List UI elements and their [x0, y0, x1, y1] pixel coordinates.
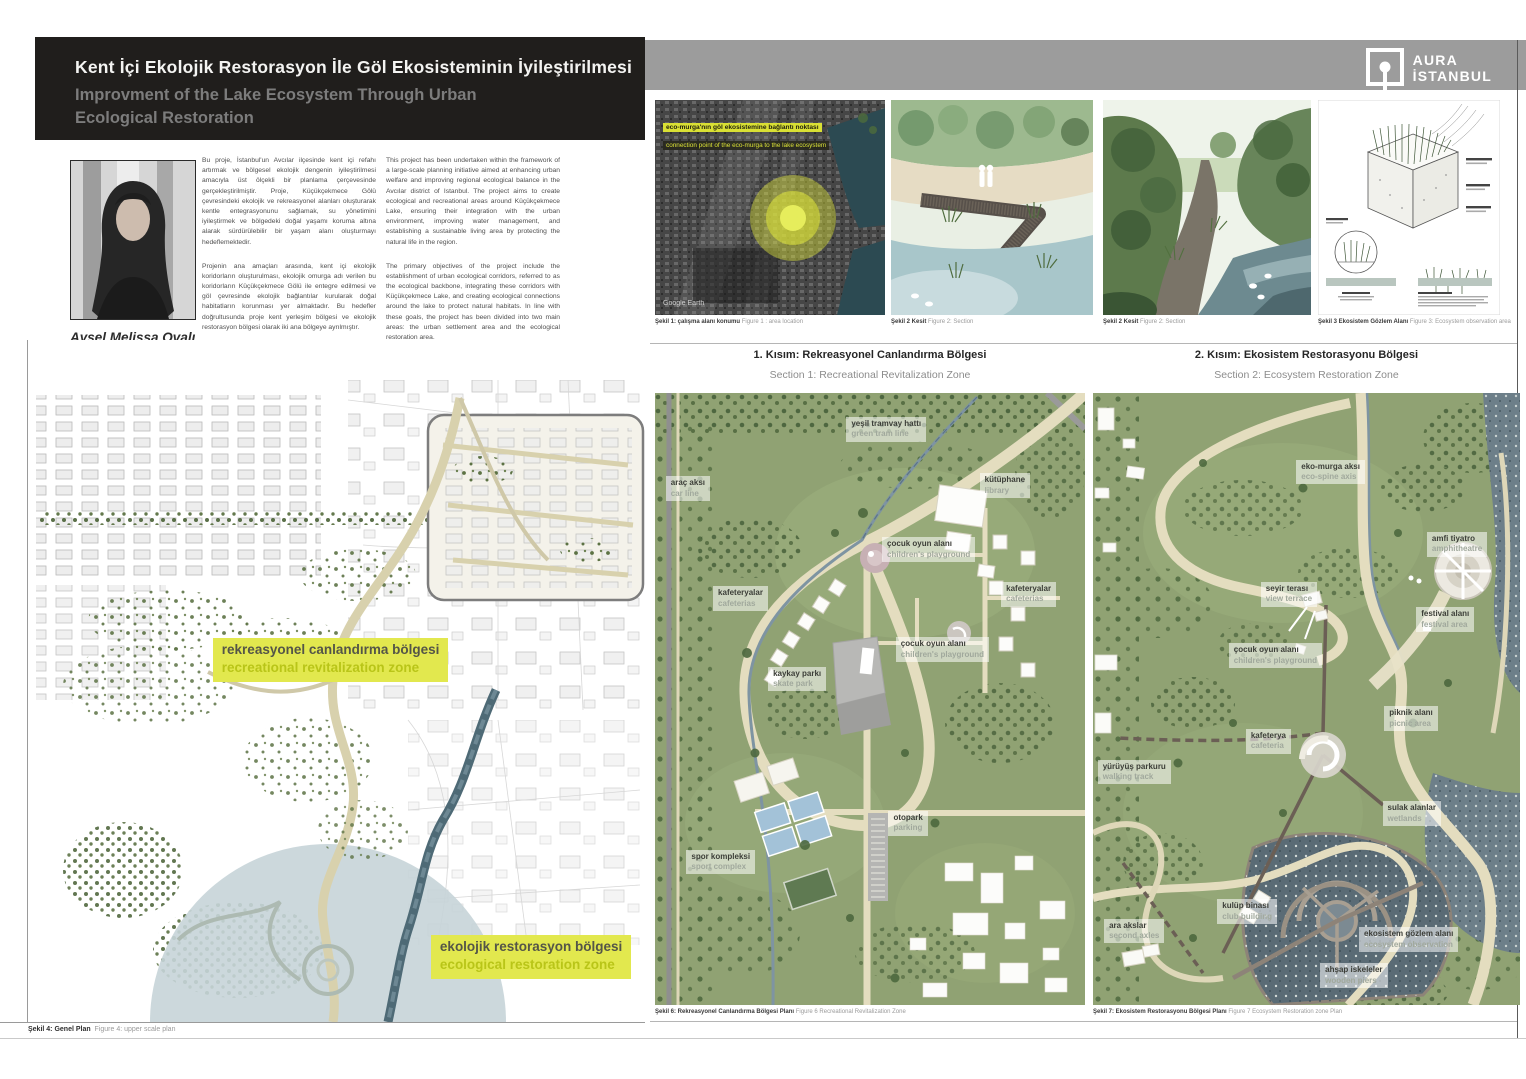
- plan2-map: eko-murga aksıeco-spine axis amfi tiyatr…: [1093, 393, 1520, 1005]
- intro-tr-paragraph-1: Bu proje, İstanbul'un Avcılar ilçesinde …: [202, 156, 376, 248]
- intro-tr-paragraph-2: Projenin ana amaçları arasında, kent içi…: [202, 262, 376, 333]
- figure-ecosystem-diagram: [1318, 100, 1500, 315]
- strip-divider-rule: [650, 343, 1517, 344]
- map-label-cafeterias-east: kafeteryalarcafeterias: [1001, 582, 1056, 607]
- section2-heading: 2. Kısım: Ekosistem Restorasyonu Bölgesi…: [1093, 349, 1520, 381]
- map-label-cafeteria: kafeteryacafeteria: [1246, 729, 1291, 754]
- intro-en-paragraph-2: The primary objectives of the project in…: [386, 262, 560, 344]
- map-label-cafeterias-west: kafeteryalarcafeterias: [713, 586, 768, 611]
- figure2-caption: Şekil 2 Kesit Figure 2: Section: [891, 319, 973, 325]
- intro-text-turkish: Bu proje, İstanbul'un Avcılar ilçesinde …: [202, 156, 376, 347]
- map-label-playground: çocuk oyun alanıchildren's playground: [1229, 643, 1322, 668]
- section2-heading-turkish: 2. Kısım: Ekosistem Restorasyonu Bölgesi: [1093, 349, 1520, 361]
- section2-heading-english: Section 2: Ecosystem Restoration Zone: [1093, 369, 1520, 381]
- google-earth-watermark: Google Earth: [663, 300, 704, 307]
- title-block: Kent İçi Ekolojik Restorasyon İle Göl Ek…: [35, 37, 645, 140]
- ecosystem-diagram-illustration: [1318, 100, 1500, 315]
- intro-en-paragraph-1: This project has been undertaken within …: [386, 156, 560, 248]
- map-label-view-terrace: seyir terasıview terrace: [1261, 582, 1317, 607]
- brand-line2: İSTANBUL: [1413, 69, 1492, 85]
- plans-bottom-rule: [650, 1021, 1517, 1022]
- map-label-skate-park: kaykay parkıskate park: [768, 667, 826, 692]
- plan1-caption: Şekil 6: Rekreasyonel Canlandırma Bölges…: [655, 1009, 906, 1015]
- map-label-playground-2: çocuk oyun alanıchildren's playground: [896, 637, 989, 662]
- author-photo: [70, 160, 196, 320]
- map-label-second-axes: ara akslarsecond axles: [1104, 919, 1164, 944]
- figure4-caption: Şekil 3 Ekosistem Gözlem Alanı Figure 3:…: [1318, 319, 1511, 325]
- map-label-playground-1: çocuk oyun alanıchildren's playground: [882, 537, 975, 562]
- zone-label-recreational: rekreasyonel canlandırma bölgesi recreat…: [213, 638, 449, 682]
- map-label-walking-track: yürüyüş parkuruwalking track: [1098, 760, 1171, 785]
- satellite-annotation-turkish: eco-murga'nın göl ekosistemine bağlantı …: [663, 123, 822, 132]
- poster-title-turkish: Kent İçi Ekolojik Restorasyon İle Göl Ek…: [75, 57, 645, 78]
- figure1-caption: Şekil 1: çalışma alanı konumu Figure 1 :…: [655, 319, 803, 325]
- figure3-caption: Şekil 2 Kesit Figure 2: Section: [1103, 319, 1185, 325]
- map-label-festival-area: festival alanıfestival area: [1416, 607, 1474, 632]
- overview-bottom-rule: [0, 1022, 645, 1023]
- section1-heading-turkish: 1. Kısım: Rekreasyonel Canlandırma Bölge…: [655, 349, 1085, 361]
- map-label-ecosystem-observation: ekosistem gözlem alanıecosystem observat…: [1359, 927, 1458, 952]
- poster-title-english: Improvment of the Lake Ecosystem Through…: [75, 84, 645, 131]
- plan1-map: yeşil tramvay hattıgreen tram line araç …: [655, 393, 1085, 1005]
- zone-label-ecological: ekolojik restorasyon bölgesi ecological …: [431, 935, 631, 979]
- satellite-annotation: eco-murga'nın göl ekosistemine bağlantı …: [663, 116, 829, 152]
- brand-wordmark: AURA İSTANBUL: [1413, 53, 1492, 84]
- map-label-picnic-area: piknik alanıpicnic area: [1384, 706, 1438, 731]
- pin-square-icon: [1365, 47, 1405, 103]
- brand-line1: AURA: [1413, 53, 1492, 69]
- section-render-illustration: [891, 100, 1093, 315]
- figure-section-boardwalk: [891, 100, 1093, 315]
- map-label-green-tram-line: yeşil tramvay hattıgreen tram line: [846, 417, 926, 442]
- poster-root: Kent İçi Ekolojik Restorasyon İle Göl Ek…: [0, 0, 1526, 1079]
- plan2-map-illustration: [1093, 393, 1520, 1005]
- aura-istanbul-logo: AURA İSTANBUL: [1365, 47, 1492, 103]
- path-render-illustration: [1103, 100, 1311, 315]
- overview-caption: Şekil 4: Genel Plan Figure 4: upper scal…: [28, 1026, 175, 1033]
- intro-text-english: This project has been undertaken within …: [386, 156, 560, 357]
- figure-satellite-location: eco-murga'nın göl ekosistemine bağlantı …: [655, 100, 885, 315]
- satellite-annotation-english: connection point of the eco-murga to the…: [663, 141, 829, 150]
- map-label-wetlands: sulak alanlarwetlands: [1383, 801, 1441, 826]
- map-label-parking: otoparkparking: [888, 811, 927, 836]
- map-label-eco-spine-axis: eko-murga aksıeco-spine axis: [1296, 460, 1365, 485]
- plan2-caption: Şekil 7: Ekosistem Restorasyonu Bölgesi …: [1093, 1009, 1342, 1015]
- map-label-car-line: araç aksıcar line: [666, 476, 710, 501]
- brand-bar: AURA İSTANBUL: [645, 40, 1526, 90]
- title-en-line2: Ecological Restoration: [75, 109, 254, 127]
- overview-map: rekreasyonel canlandırma bölgesi recreat…: [27, 340, 646, 1022]
- author-portrait-illustration: [71, 161, 195, 319]
- map-label-amphitheatre: amfi tiyatroamphitheatre: [1427, 532, 1487, 557]
- title-en-line1: Improvment of the Lake Ecosystem Through…: [75, 86, 477, 104]
- section1-heading: 1. Kısım: Rekreasyonel Canlandırma Bölge…: [655, 349, 1085, 381]
- map-label-sport-complex: spor kompleksisport complex: [686, 850, 755, 875]
- section1-heading-english: Section 1: Recreational Revitalization Z…: [655, 369, 1085, 381]
- map-label-club-building: kulüp binasıclub building: [1217, 899, 1277, 924]
- poster-bottom-rule: [0, 1038, 1526, 1039]
- figure-section-path: [1103, 100, 1311, 315]
- map-label-wooden-piers: ahşap iskelelerwooden piers: [1320, 963, 1387, 988]
- map-label-library: kütüphanelibrary: [980, 473, 1030, 498]
